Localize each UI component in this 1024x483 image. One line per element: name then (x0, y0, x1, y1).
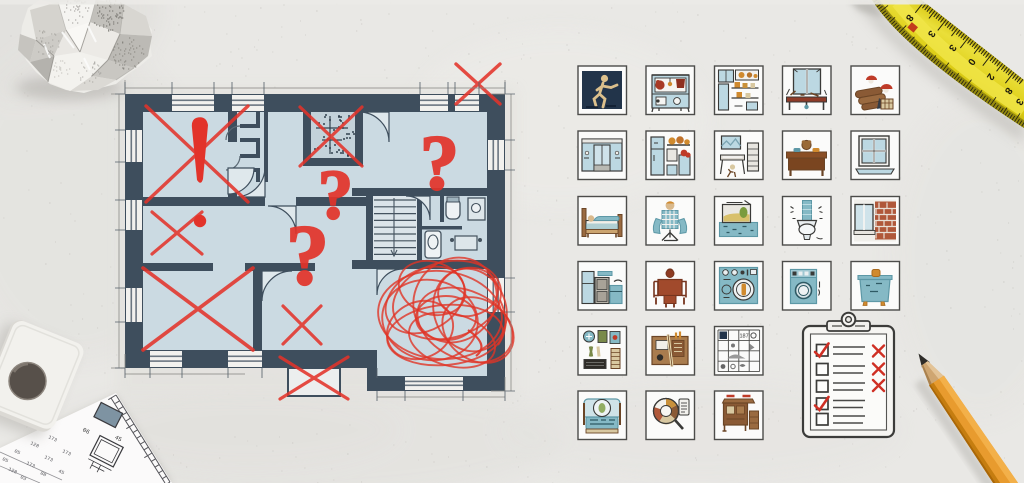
svg-text:187: 187 (740, 334, 749, 340)
svg-text:?: ? (420, 119, 459, 206)
svg-text:?: ? (286, 207, 329, 303)
